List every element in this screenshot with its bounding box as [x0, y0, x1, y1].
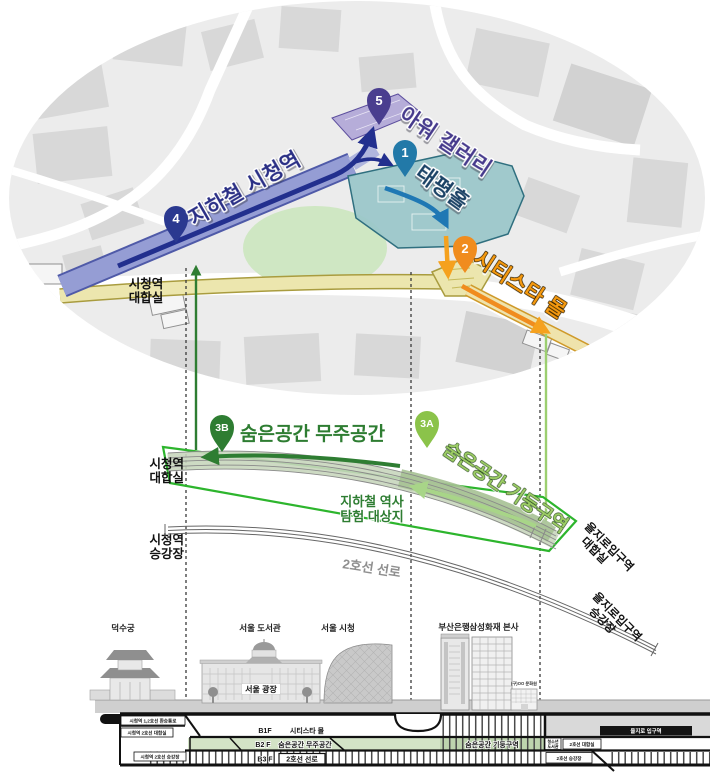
cityhall-platform-line1: 시청역	[149, 532, 184, 547]
cityhall-label: 서울 시청	[321, 623, 355, 633]
hall-label-line2: 대합실	[129, 290, 164, 305]
section-left-labels: 시청역 대합실 시청역 승강장	[149, 456, 184, 561]
arrow-hall-to-hub	[446, 236, 448, 274]
b3-label: 2호선 선로	[286, 755, 318, 764]
map-area: 시청역 대합실 5 아워 갤러리 1 태평홀 4 지하철 시청역 2	[0, 1, 705, 395]
samsung-label: 삼성화재 본사	[469, 622, 518, 632]
note-line2: 탐험 대상지	[340, 509, 403, 524]
pin-5-number: 5	[375, 93, 382, 108]
busan-bank-building	[441, 634, 469, 710]
column-hatch-b3	[145, 752, 545, 765]
pin-4-number: 4	[172, 211, 180, 226]
samsung-building	[472, 637, 512, 710]
line2-track-label: 2호선 선로	[342, 556, 402, 580]
right-box1-line2: 도서관	[547, 743, 558, 749]
line2-platform-label: 시청역 2호선 승강장	[141, 754, 181, 761]
cityhall-building	[324, 644, 392, 703]
cross-section: 시청역 1,2호선 환승통로 시청역 2호선 대합실 시청역 2호선 승강장 B…	[100, 714, 710, 771]
right-box2-label: 2호선 대합실	[570, 741, 595, 748]
ground-band	[95, 700, 710, 713]
b1-level: B1F	[258, 728, 272, 735]
station-exploration-diagram: 시청역 대합실 5 아워 갤러리 1 태평홀 4 지하철 시청역 2	[0, 0, 710, 772]
hidden-space-section: 3B 숨은공간 무주공간 3A 숨은공간 기둥구역 시청역 대합실 시청역 승강…	[149, 411, 658, 656]
small-building	[511, 689, 537, 710]
deoksugung-label: 덕수궁	[111, 623, 135, 633]
cityhall-hall-line1: 시청역	[149, 456, 184, 471]
line2-hall-label: 시청역 2호선 대합실	[128, 730, 167, 737]
pin-3a-pillar-zone: 3A	[415, 411, 439, 448]
xsection-left-labels: 시청역 1,2호선 환승통로 시청역 2호선 대합실 시청역 2호선 승강장	[121, 716, 186, 761]
column-hatch-b3-right	[610, 752, 710, 765]
euljiro-hall-label: 을지로입구역 대합실	[573, 519, 637, 583]
b3-level: B3 F	[257, 757, 273, 764]
skyline: 덕수궁 서울 도서관 서울 시청	[90, 622, 710, 713]
transfer-passage-label: 시청역 1,2호선 환승통로	[130, 718, 178, 725]
plaza-label: 서울 광장	[245, 684, 277, 694]
cityhall-hall-line2: 대합실	[149, 470, 184, 485]
euljiro-platform-label: 을지로입구역 승강장	[581, 589, 645, 653]
b2-label: 숨은공간 무주공간	[278, 740, 332, 749]
cityhall-platform-line2: 승강장	[149, 546, 184, 561]
small-building-label: (구)OO 문화원	[511, 680, 537, 687]
pin-1-number: 1	[401, 145, 408, 160]
pin-3b-mujus-space: 3B	[210, 415, 234, 452]
pin-3a-number: 3A	[420, 418, 434, 430]
busan-bank-label: 부산은행	[438, 622, 469, 632]
deoksugung-building	[90, 650, 175, 700]
label-mujus-space: 숨은공간 무주공간	[240, 423, 386, 445]
b2-right-zone-label: 숨은공간 기둥구역	[465, 740, 518, 749]
b2-level: B2 F	[255, 742, 271, 749]
note-line1: 지하철 역사	[340, 494, 403, 509]
pin-3b-number: 3B	[215, 422, 229, 434]
map-hall-label: 시청역 대합실	[129, 276, 164, 305]
right-box3-label: 2호선 승강장	[557, 755, 583, 762]
pin-2-number: 2	[461, 241, 468, 256]
hall-label-line1: 시청역	[129, 276, 164, 291]
exploration-note: 지하철 역사 탐험 대상지	[340, 494, 403, 524]
library-label: 서울 도서관	[239, 623, 281, 633]
b1-label: 시티스타 몰	[290, 726, 325, 735]
euljiro-station-label: 을지로 입구역	[630, 727, 661, 735]
